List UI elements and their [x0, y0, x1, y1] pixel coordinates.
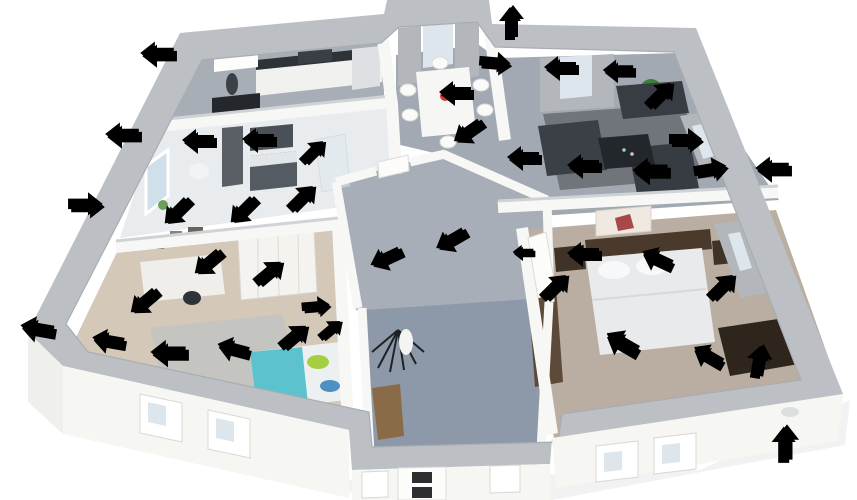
coat [399, 329, 413, 355]
floorplan-scene [0, 0, 857, 500]
kids-pillow-green [307, 355, 329, 369]
dining-chair [440, 136, 456, 148]
dining-chair [473, 79, 489, 91]
entrance-window [362, 471, 388, 498]
bedroom-window-front-glass [604, 451, 622, 472]
front-door-panel [412, 472, 432, 483]
coffee-table-item [630, 152, 634, 156]
bed-pillow [598, 261, 630, 279]
dining-chair [400, 84, 416, 96]
coffee-table-item [622, 148, 626, 152]
dining-chair [402, 109, 418, 121]
kids-pillow-blue [320, 380, 340, 392]
water-heater-cylinder [226, 73, 238, 95]
bedroom-window-front-glass [662, 443, 680, 464]
living-window-back [560, 55, 592, 99]
fridge [352, 46, 380, 90]
kids-window-glass [216, 418, 234, 442]
dining-chair [477, 104, 493, 116]
dining-chair [432, 57, 448, 69]
entrance-window [490, 465, 520, 493]
bathroom-tall-cabinet [222, 126, 243, 187]
front-door-panel [412, 487, 432, 498]
wall-vent [781, 407, 799, 417]
desk-chair [183, 291, 201, 305]
toilet [189, 163, 209, 179]
kids-window-glass [148, 402, 166, 426]
